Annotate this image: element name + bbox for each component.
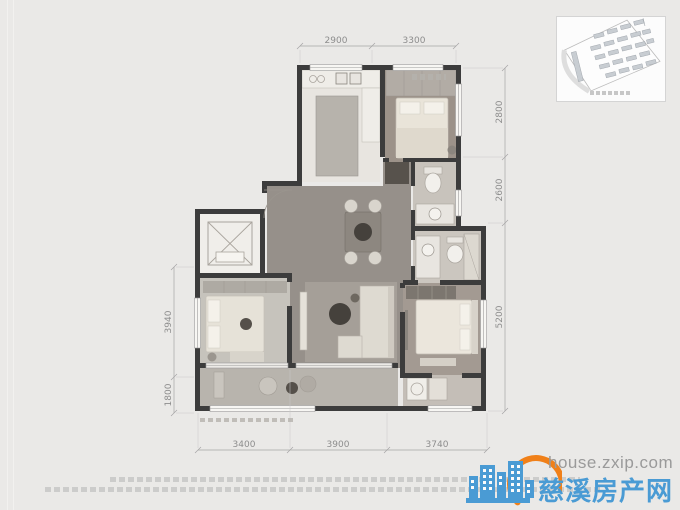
washbasin-icon xyxy=(429,208,441,220)
plant-icon xyxy=(448,146,457,155)
desk xyxy=(230,352,264,362)
ottoman xyxy=(338,336,362,358)
dim-left-1: 3940 xyxy=(164,310,174,333)
stove-icon xyxy=(336,73,347,84)
toilet-icon xyxy=(447,245,463,263)
plant-icon xyxy=(208,353,217,362)
pillow xyxy=(460,304,470,325)
watermark-site-name: 慈溪房产网 xyxy=(538,471,673,508)
inset-caption xyxy=(590,91,632,95)
washbasin-icon xyxy=(422,244,434,256)
dim-left-2: 1800 xyxy=(164,383,174,406)
dining-chair xyxy=(369,200,382,213)
dim-top-1: 2900 xyxy=(325,36,348,46)
site-watermark: house.zxip.com 慈溪房产网 xyxy=(462,450,680,510)
dim-bottom-3: 3740 xyxy=(426,440,449,450)
site-plan-map xyxy=(557,17,665,97)
dim-bottom-2: 3900 xyxy=(327,440,350,450)
pillow xyxy=(460,329,470,350)
bench xyxy=(420,358,456,366)
plant-icon xyxy=(286,382,298,394)
dim-right-2: 2600 xyxy=(495,178,505,201)
tv-console xyxy=(300,292,307,350)
dim-top-2: 3300 xyxy=(403,36,426,46)
dining-chair xyxy=(369,252,382,265)
pillow xyxy=(208,326,220,348)
flue-label xyxy=(412,74,446,80)
chair-icon xyxy=(240,318,252,330)
dining-chair xyxy=(345,200,358,213)
balcony-floor xyxy=(200,366,398,408)
dim-bottom-1: 3400 xyxy=(233,440,256,450)
fridge-counter xyxy=(362,88,380,142)
dining-chair xyxy=(345,252,358,265)
washer-icon xyxy=(407,378,427,400)
plan-note-text xyxy=(200,418,295,422)
laundry-balcony xyxy=(407,378,447,400)
toilet-icon xyxy=(425,173,441,193)
coffee-table xyxy=(329,303,351,325)
pillow xyxy=(424,102,444,114)
flue xyxy=(385,162,409,184)
tv-stand xyxy=(405,310,408,350)
headboard xyxy=(472,300,478,354)
dim-right-3: 5200 xyxy=(495,305,505,328)
bedroom-1 xyxy=(386,70,457,158)
screenshot-canvas: 2900 3300 2800 2600 5200 3940 1800 3400 … xyxy=(0,0,680,510)
blanket xyxy=(396,128,448,158)
pillow xyxy=(208,300,220,322)
site-plan-inset xyxy=(556,16,666,102)
watermark-url: house.zxip.com xyxy=(548,453,673,473)
pillow xyxy=(400,102,420,114)
wardrobe xyxy=(406,286,456,299)
dim-right-1: 2800 xyxy=(495,100,505,123)
kitchen-island xyxy=(316,96,358,176)
